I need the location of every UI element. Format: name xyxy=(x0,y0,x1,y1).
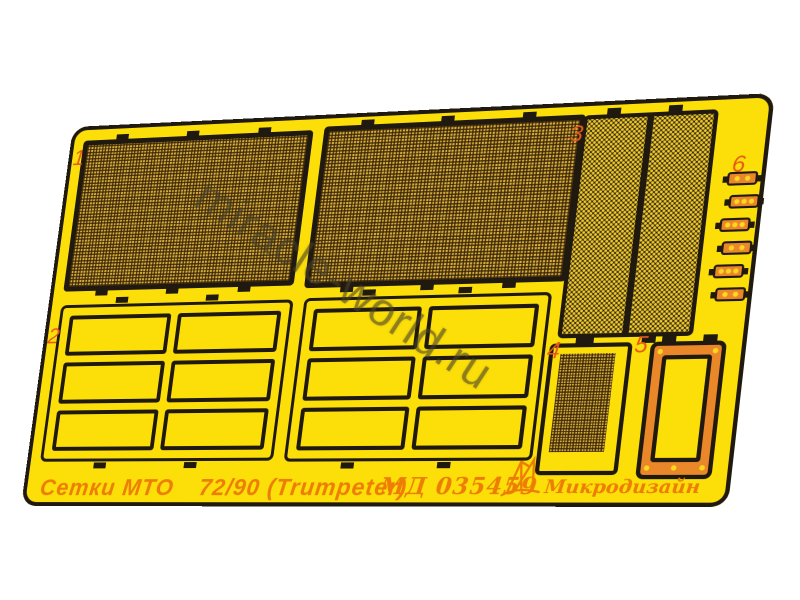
frame-cell xyxy=(302,356,415,400)
frame-cell xyxy=(65,313,171,356)
mikrodesign-logo-icon xyxy=(499,456,546,498)
etch-tab xyxy=(186,131,199,137)
etch-tab xyxy=(340,462,354,468)
strip-part xyxy=(712,264,744,279)
strip-part xyxy=(728,194,760,209)
etch-tab xyxy=(662,335,677,342)
rivet-dot xyxy=(671,465,677,470)
strip-part xyxy=(714,287,746,302)
etch-tab xyxy=(166,288,179,294)
product-name: Сетки МТО xyxy=(39,476,176,499)
strip-part xyxy=(719,217,751,232)
etch-tab xyxy=(95,289,108,295)
frame-cell xyxy=(166,359,275,402)
rivet-dot xyxy=(657,349,663,354)
etch-tab xyxy=(575,337,589,344)
strip-part xyxy=(721,240,753,255)
brand-name: Микродизайн xyxy=(543,478,701,497)
strip-parts-group xyxy=(700,171,770,306)
etch-tab xyxy=(183,462,196,468)
etch-tab xyxy=(206,294,219,300)
rivet-dot xyxy=(644,465,650,470)
etch-tab xyxy=(115,297,128,303)
product-photo: 1 3 6 xyxy=(0,0,800,600)
etch-tab xyxy=(607,108,621,115)
etch-tab xyxy=(237,286,250,292)
frame-group-1 xyxy=(40,299,294,461)
frame-cell xyxy=(296,407,409,451)
panel-divider xyxy=(622,116,654,333)
rivet-dot xyxy=(713,348,719,353)
etch-tab xyxy=(669,105,684,112)
frame-window xyxy=(650,354,712,462)
scale-info: 72/90 (Trumpeter) xyxy=(198,476,409,500)
frame-cell xyxy=(172,311,281,354)
rivet-dot xyxy=(699,465,705,470)
frame-cell xyxy=(159,408,268,450)
etch-tab xyxy=(258,127,271,133)
frame-cell xyxy=(411,405,527,449)
etch-tab xyxy=(523,112,537,119)
etch-tab xyxy=(93,462,106,468)
part-number-5: 5 xyxy=(633,333,649,356)
etch-tab xyxy=(458,287,472,293)
etch-tab xyxy=(502,282,516,289)
etch-tab xyxy=(420,284,434,290)
frame-cell xyxy=(52,409,159,451)
etch-tab xyxy=(703,334,718,341)
part-number-6: 6 xyxy=(731,153,747,177)
mesh-patch xyxy=(549,353,616,452)
etch-tab xyxy=(361,119,375,126)
frame-cell xyxy=(58,361,165,403)
etch-tab xyxy=(441,116,455,123)
etch-tab xyxy=(437,462,451,468)
orange-frame-panel xyxy=(635,340,727,479)
etch-tab xyxy=(116,134,129,140)
